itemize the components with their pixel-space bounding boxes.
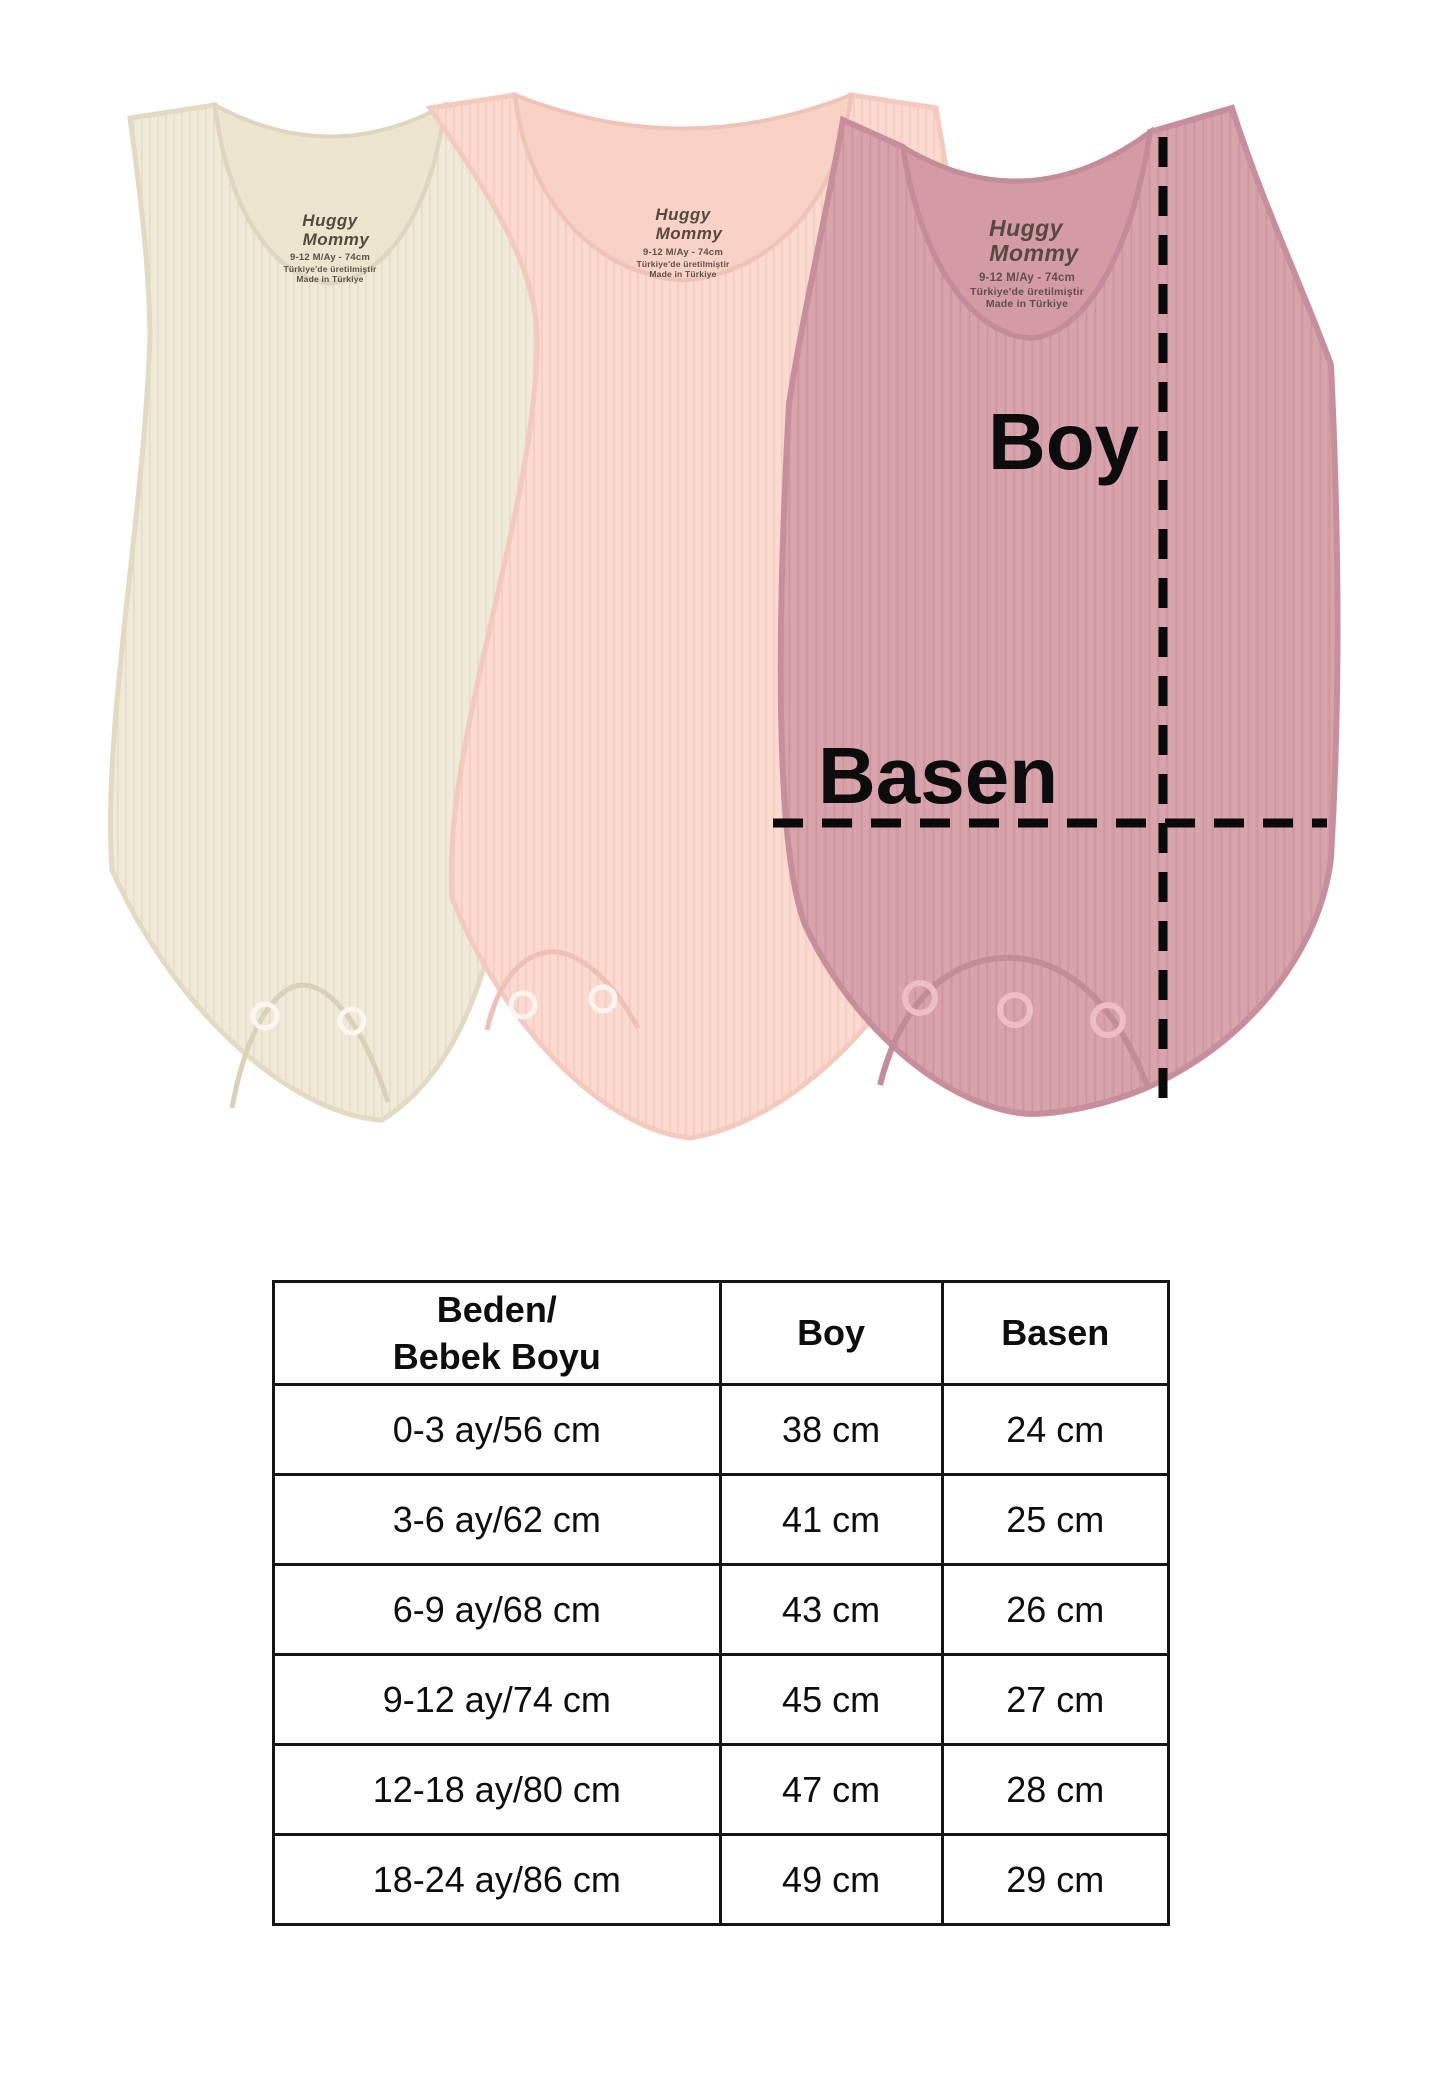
cell-beden: 9-12 ay/74 cm [274,1655,721,1745]
cell-beden: 3-6 ay/62 cm [274,1475,721,1565]
care-label-origin-line2: Made in Türkiye [296,274,363,284]
cell-beden: 0-3 ay/56 cm [274,1385,721,1475]
cell-basen: 26 cm [942,1565,1168,1655]
cell-basen: 29 cm [942,1835,1168,1925]
cell-basen: 27 cm [942,1655,1168,1745]
care-label-brand-line1: Huggy [989,215,1064,241]
cell-boy: 38 cm [720,1385,942,1475]
care-label-brand-line1: Huggy [655,205,711,224]
care-label-origin-line2: Made in Türkiye [649,269,716,279]
cell-boy: 47 cm [720,1745,942,1835]
cell-boy: 43 cm [720,1565,942,1655]
care-label-brand-line2: Mommy [656,224,724,243]
boy-length-annotation: Boy [988,402,1139,482]
cell-boy: 41 cm [720,1475,942,1565]
size-chart-row-6-9: 6-9 ay/68 cm 43 cm 26 cm [274,1565,1169,1655]
care-label-size-line: 9-12 M/Ay - 74cm [979,272,1075,284]
size-chart-row-9-12: 9-12 ay/74 cm 45 cm 27 cm [274,1655,1169,1745]
header-beden-bebek-boyu: Beden/ Bebek Boyu [274,1282,721,1385]
care-label-origin-line1: Türkiye'de üretilmiştir [283,264,377,274]
cell-beden: 12-18 ay/80 cm [274,1745,721,1835]
size-chart-table: Beden/ Bebek Boyu Boy Basen 0-3 ay/56 cm… [272,1280,1170,1926]
cell-boy: 49 cm [720,1835,942,1925]
size-chart-header-row: Beden/ Bebek Boyu Boy Basen [274,1282,1169,1385]
size-chart-row-0-3: 0-3 ay/56 cm 38 cm 24 cm [274,1385,1169,1475]
care-label-size-line: 9-12 M/Ay - 74cm [290,252,370,263]
size-chart-row-18-24: 18-24 ay/86 cm 49 cm 29 cm [274,1835,1169,1925]
header-basen: Basen [942,1282,1168,1385]
cell-basen: 24 cm [942,1385,1168,1475]
care-label-origin-line1: Türkiye'de üretilmiştir [970,286,1084,298]
care-label-brand-line1: Huggy [302,211,358,230]
product-size-guide-page: Huggy Mommy 9-12 M/Ay - 74cm Türkiye'de … [0,0,1440,2094]
header-beden-line1: Beden/ [275,1286,719,1333]
care-label-brand-line2: Mommy [303,230,371,249]
bodysuit-rose: Huggy Mommy 9-12 M/Ay - 74cm Türkiye'de … [781,108,1338,1114]
cell-beden: 18-24 ay/86 cm [274,1835,721,1925]
care-label-size-line: 9-12 M/Ay - 74cm [643,247,723,258]
cell-boy: 45 cm [720,1655,942,1745]
care-label-origin-line2: Made in Türkiye [986,298,1068,310]
header-beden-line2: Bebek Boyu [275,1333,719,1380]
care-label-brand-line2: Mommy [989,240,1079,266]
header-boy: Boy [720,1282,942,1385]
cell-basen: 28 cm [942,1745,1168,1835]
size-chart-row-12-18: 12-18 ay/80 cm 47 cm 28 cm [274,1745,1169,1835]
basen-hip-annotation: Basen [818,736,1058,816]
cell-beden: 6-9 ay/68 cm [274,1565,721,1655]
care-label-origin-line1: Türkiye'de üretilmiştir [636,259,730,269]
cell-basen: 25 cm [942,1475,1168,1565]
size-chart-row-3-6: 3-6 ay/62 cm 41 cm 25 cm [274,1475,1169,1565]
